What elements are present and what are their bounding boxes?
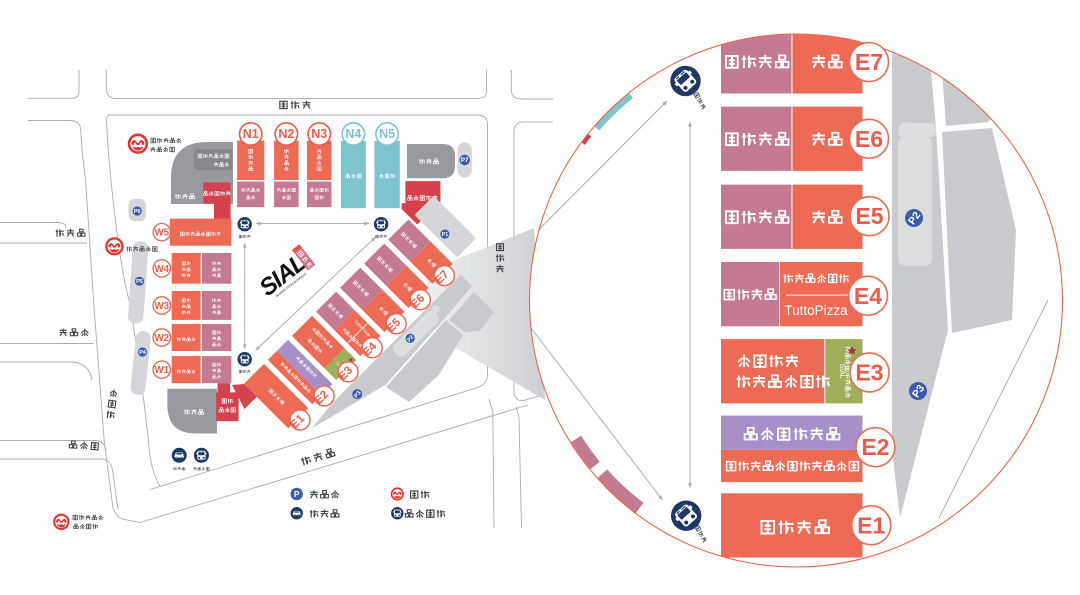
- svg-text:N5: N5: [379, 127, 395, 141]
- svg-text:W4: W4: [154, 264, 169, 275]
- svg-text:E7: E7: [855, 49, 883, 75]
- svg-text:P7: P7: [461, 157, 469, 164]
- svg-text:W2: W2: [154, 333, 169, 344]
- svg-text:E1: E1: [857, 512, 885, 538]
- svg-text:E6: E6: [855, 126, 883, 152]
- svg-text:P1: P1: [442, 232, 449, 238]
- svg-text:N2: N2: [278, 127, 294, 141]
- svg-text:P6: P6: [134, 209, 141, 215]
- svg-text:N1: N1: [243, 127, 259, 141]
- svg-text:E2: E2: [861, 434, 889, 460]
- svg-text:TuttoPizza: TuttoPizza: [784, 303, 848, 318]
- svg-text:W1: W1: [154, 365, 169, 376]
- svg-text:E4: E4: [854, 283, 882, 309]
- svg-text:E5: E5: [855, 203, 883, 229]
- svg-text:P: P: [294, 489, 300, 499]
- svg-text:P4: P4: [139, 350, 147, 356]
- svg-text:W5: W5: [154, 228, 169, 239]
- svg-text:W3: W3: [154, 301, 169, 312]
- svg-text:P5: P5: [136, 279, 143, 285]
- svg-text:SIAL: SIAL: [838, 364, 845, 379]
- svg-text:N4: N4: [345, 127, 361, 141]
- svg-text:E3: E3: [855, 359, 883, 385]
- svg-text:N3: N3: [311, 127, 327, 141]
